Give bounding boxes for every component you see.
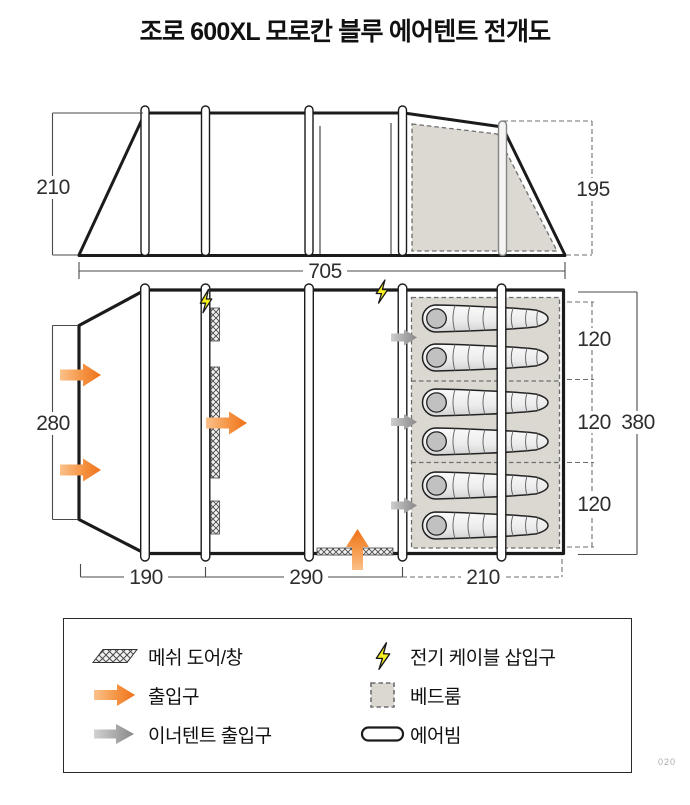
legend: 메쉬 도어/창 출입구 <box>63 618 632 773</box>
dimension-height-left: 210 <box>31 113 143 255</box>
dimension-label-210: 210 <box>466 566 500 589</box>
bedroom-area <box>412 298 560 549</box>
page-number: 020 <box>658 757 676 767</box>
dimension-label-120-top: 120 <box>577 328 611 351</box>
air-beam-pole <box>305 106 313 256</box>
legend-label: 이너텐트 출입구 <box>148 721 272 748</box>
legend-item-inner-entrance: 이너텐트 출입구 <box>92 719 272 749</box>
sleeping-bag <box>423 512 549 539</box>
legend-item-entrance: 출입구 <box>92 680 199 710</box>
lightning-icon <box>366 641 400 671</box>
mesh-panel <box>211 308 220 341</box>
tent-diagram: 210 195 705 <box>0 55 690 605</box>
legend-label: 베드룸 <box>410 682 461 709</box>
legend-label: 출입구 <box>148 682 199 709</box>
sleeping-bag <box>423 428 549 455</box>
legend-item-cable-port: 전기 케이블 삽입구 <box>366 641 555 671</box>
sleeping-bag <box>423 305 549 332</box>
dimension-label-120-middle: 120 <box>577 411 611 434</box>
air-beam-pole <box>497 284 506 561</box>
legend-item-mesh: 메쉬 도어/창 <box>92 641 242 671</box>
air-beam-pole <box>141 106 149 256</box>
legend-label: 에어빔 <box>410 721 461 748</box>
bedroom-swatch-icon <box>366 681 400 709</box>
dimension-length: 705 <box>79 260 565 283</box>
legend-item-bedroom: 베드룸 <box>366 680 461 710</box>
legend-item-airbeam: 에어빔 <box>360 719 461 749</box>
air-beam-pole <box>141 284 150 561</box>
inner-tent-entrance-arrow-icon <box>92 722 138 746</box>
sleeping-bag <box>423 472 549 499</box>
dimension-label-190: 190 <box>129 566 163 589</box>
page-title: 조로 600XL 모로칸 블루 에어텐트 전개도 <box>0 12 690 48</box>
floorplan-view: 280 190 290 210 120 120 <box>31 280 660 589</box>
dimension-label-280: 280 <box>36 412 70 435</box>
dimension-front-depth: 280 <box>31 326 78 520</box>
legend-label: 메쉬 도어/창 <box>148 643 242 670</box>
dimension-label-380: 380 <box>621 411 655 434</box>
air-beam-pole <box>305 284 314 561</box>
air-beam-pole <box>499 121 507 256</box>
dimension-bottom: 190 290 210 <box>81 559 563 589</box>
sleeping-bag <box>423 389 549 416</box>
dimension-label-120-bottom: 120 <box>577 493 611 516</box>
dimension-label-210: 210 <box>36 176 70 199</box>
air-beam-icon <box>360 725 406 743</box>
sleeping-bag <box>423 344 549 371</box>
mesh-swatch-icon <box>92 648 138 664</box>
air-beam-pole <box>202 106 210 256</box>
elevation-view: 210 195 705 <box>31 106 614 283</box>
mesh-panel <box>211 501 220 534</box>
entrance-arrow-icon <box>92 683 138 707</box>
lightning-icon <box>375 280 390 303</box>
dimension-label-290: 290 <box>289 566 323 589</box>
air-beam-pole <box>399 106 407 256</box>
dimension-bedroom-segments: 120 120 120 <box>567 302 616 547</box>
bedroom-area-side <box>412 124 557 251</box>
dimension-label-705: 705 <box>308 260 342 283</box>
dimension-label-195: 195 <box>576 178 610 201</box>
legend-label: 전기 케이블 삽입구 <box>410 643 555 670</box>
